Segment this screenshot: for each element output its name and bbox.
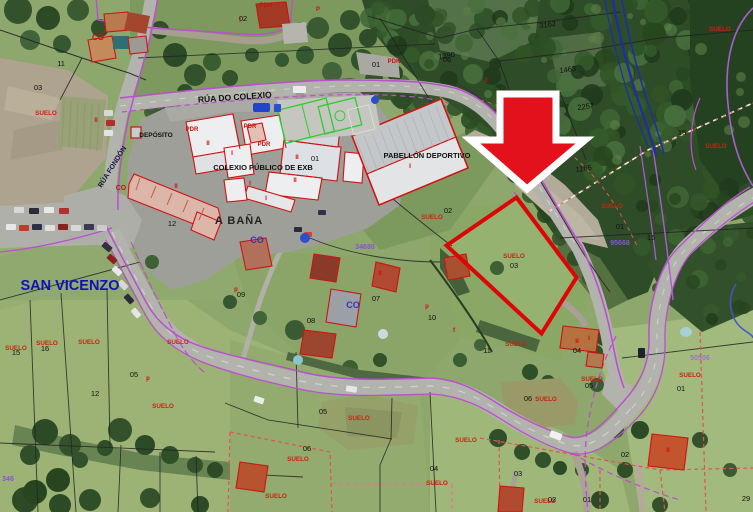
svg-text:50506: 50506 bbox=[690, 355, 710, 362]
svg-text:SUELO: SUELO bbox=[709, 26, 731, 33]
svg-text:01: 01 bbox=[583, 495, 591, 504]
svg-text:DEPÓSITO: DEPÓSITO bbox=[139, 130, 172, 139]
svg-text:06: 06 bbox=[303, 444, 311, 453]
svg-text:II: II bbox=[94, 118, 98, 124]
svg-text:CO: CO bbox=[346, 300, 360, 310]
svg-text:11: 11 bbox=[57, 59, 65, 68]
svg-text:SUELO: SUELO bbox=[265, 493, 287, 500]
svg-text:CO: CO bbox=[92, 33, 104, 42]
svg-text:PDR: PDR bbox=[388, 59, 401, 65]
svg-text:II: II bbox=[295, 155, 299, 161]
svg-text:II: II bbox=[293, 178, 297, 184]
svg-text:02: 02 bbox=[621, 450, 629, 459]
svg-text:15: 15 bbox=[12, 348, 20, 357]
svg-text:SUELO: SUELO bbox=[152, 403, 174, 410]
svg-text:PDR: PDR bbox=[186, 127, 199, 133]
svg-text:29: 29 bbox=[742, 494, 750, 503]
svg-text:08: 08 bbox=[307, 316, 315, 325]
svg-text:05: 05 bbox=[319, 407, 327, 416]
svg-text:CO: CO bbox=[116, 185, 127, 192]
svg-text:11: 11 bbox=[483, 346, 491, 355]
svg-text:I: I bbox=[249, 180, 251, 187]
svg-text:SUELO: SUELO bbox=[348, 415, 370, 422]
svg-text:06: 06 bbox=[524, 394, 532, 403]
svg-text:SUELO: SUELO bbox=[601, 203, 623, 210]
svg-text:SUELO: SUELO bbox=[167, 339, 189, 346]
svg-text:II: II bbox=[575, 338, 579, 345]
svg-text:PDR: PDR bbox=[244, 124, 257, 130]
svg-text:A BAÑA: A BAÑA bbox=[215, 214, 263, 227]
svg-text:SUELO: SUELO bbox=[705, 143, 727, 150]
svg-text:SUELO: SUELO bbox=[421, 214, 443, 221]
svg-text:07: 07 bbox=[372, 294, 380, 303]
svg-text:12: 12 bbox=[168, 219, 176, 228]
svg-text:p: p bbox=[146, 376, 150, 382]
svg-text:01: 01 bbox=[616, 222, 624, 231]
svg-text:II: II bbox=[174, 184, 178, 190]
svg-text:p: p bbox=[234, 287, 238, 293]
svg-text:SUELO: SUELO bbox=[503, 253, 525, 260]
svg-text:15: 15 bbox=[678, 128, 686, 137]
svg-text:16: 16 bbox=[41, 344, 49, 353]
svg-text:03: 03 bbox=[514, 469, 522, 478]
svg-text:II: II bbox=[378, 271, 382, 277]
svg-text:SUELO: SUELO bbox=[679, 372, 701, 379]
svg-text:02: 02 bbox=[444, 206, 452, 215]
svg-text:I: I bbox=[265, 195, 267, 202]
svg-text:05: 05 bbox=[130, 370, 138, 379]
svg-text:34680: 34680 bbox=[355, 244, 375, 251]
svg-text:SUELO: SUELO bbox=[35, 110, 57, 117]
svg-text:04: 04 bbox=[430, 464, 438, 473]
svg-text:PDR: PDR bbox=[258, 142, 271, 148]
svg-text:95668: 95668 bbox=[610, 240, 630, 247]
svg-text:PDR: PDR bbox=[260, 3, 273, 9]
svg-text:SUELO: SUELO bbox=[535, 396, 557, 403]
svg-text:02: 02 bbox=[548, 495, 556, 504]
svg-text:01: 01 bbox=[677, 384, 685, 393]
svg-text:09: 09 bbox=[237, 290, 245, 299]
svg-text:SUELO: SUELO bbox=[287, 456, 309, 463]
svg-text:SUELO: SUELO bbox=[505, 341, 527, 348]
svg-text:SUELO: SUELO bbox=[78, 339, 100, 346]
svg-text:I: I bbox=[409, 163, 411, 170]
svg-text:346: 346 bbox=[2, 476, 14, 483]
svg-text:01: 01 bbox=[311, 154, 319, 163]
svg-text:SUELO: SUELO bbox=[426, 480, 448, 487]
svg-text:II: II bbox=[666, 447, 670, 454]
svg-text:10: 10 bbox=[428, 313, 436, 322]
svg-text:I: I bbox=[239, 17, 241, 24]
svg-text:PABELLÓN DEPORTIVO: PABELLÓN DEPORTIVO bbox=[384, 151, 471, 160]
svg-text:COLEXIO PÚBLICO DE EXB: COLEXIO PÚBLICO DE EXB bbox=[213, 163, 313, 172]
svg-text:12: 12 bbox=[91, 389, 99, 398]
svg-text:15: 15 bbox=[647, 233, 655, 242]
svg-text:05: 05 bbox=[585, 381, 593, 390]
svg-text:CO: CO bbox=[250, 235, 264, 245]
svg-text:I: I bbox=[588, 335, 590, 342]
svg-text:03: 03 bbox=[34, 83, 42, 92]
svg-text:01: 01 bbox=[372, 60, 380, 69]
svg-text:SAN VICENZO: SAN VICENZO bbox=[20, 278, 119, 294]
svg-text:P: P bbox=[316, 7, 320, 13]
svg-text:I: I bbox=[231, 150, 233, 157]
svg-text:03: 03 bbox=[510, 261, 518, 270]
svg-text:SUELO: SUELO bbox=[455, 437, 477, 444]
svg-text:04: 04 bbox=[573, 346, 581, 355]
svg-text:II: II bbox=[206, 141, 210, 147]
svg-text:p: p bbox=[425, 304, 429, 310]
